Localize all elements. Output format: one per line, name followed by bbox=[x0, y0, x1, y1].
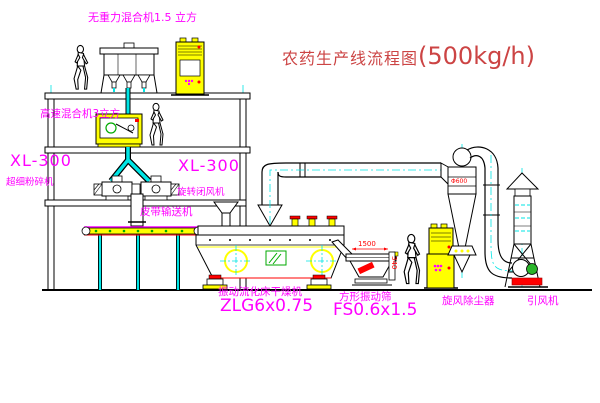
exhaust-duct bbox=[258, 163, 452, 226]
dim-sieve-length: 1500 bbox=[358, 241, 376, 248]
person-ground bbox=[404, 234, 419, 283]
title-capacity: (500kg/h) bbox=[418, 42, 535, 70]
label-cyclone: 旋风除尘器 bbox=[442, 296, 495, 307]
gravity-mixer-machine bbox=[100, 43, 158, 93]
person-third-floor bbox=[150, 103, 163, 145]
induced-draft-fan-machine bbox=[508, 260, 548, 288]
process-flow-diagram: 农药生产线流程图(500kg/h) 无重力混合机1.5 立方 高速混合机3立方 … bbox=[0, 0, 600, 403]
belt-conveyor-machine bbox=[82, 227, 202, 290]
dim-sieve-height: 340 bbox=[390, 256, 397, 269]
dim-cyclone-dia: Φ600 bbox=[451, 179, 467, 185]
label-crusher-model-left: XL-300 bbox=[10, 153, 72, 169]
label-crusher-model-mid: XL-300 bbox=[178, 158, 240, 174]
diagram-title: 农药生产线流程图(500kg/h) bbox=[282, 44, 535, 68]
label-sieve-model: FS0.6x1.5 bbox=[333, 302, 417, 319]
control-cabinet-cyclone bbox=[424, 224, 458, 288]
label-fan: 引风机 bbox=[527, 296, 559, 307]
label-rotary-valve: 旋转闭风机 bbox=[177, 188, 225, 198]
label-gravity-mixer: 无重力混合机1.5 立方 bbox=[88, 12, 197, 23]
label-high-speed-mixer: 高速混合机3立方 bbox=[40, 109, 120, 120]
person-top-floor bbox=[74, 45, 88, 89]
control-cabinet-top bbox=[171, 38, 209, 95]
label-crusher-name-left: 超细粉碎机 bbox=[6, 178, 54, 188]
label-belt-conveyor: 皮带输送机 bbox=[140, 207, 193, 218]
label-dryer-model: ZLG6x0.75 bbox=[220, 298, 313, 315]
fluid-bed-dryer-machine bbox=[196, 216, 344, 289]
dryer-feed-funnel bbox=[214, 202, 238, 228]
title-text: 农药生产线流程图 bbox=[282, 49, 418, 68]
